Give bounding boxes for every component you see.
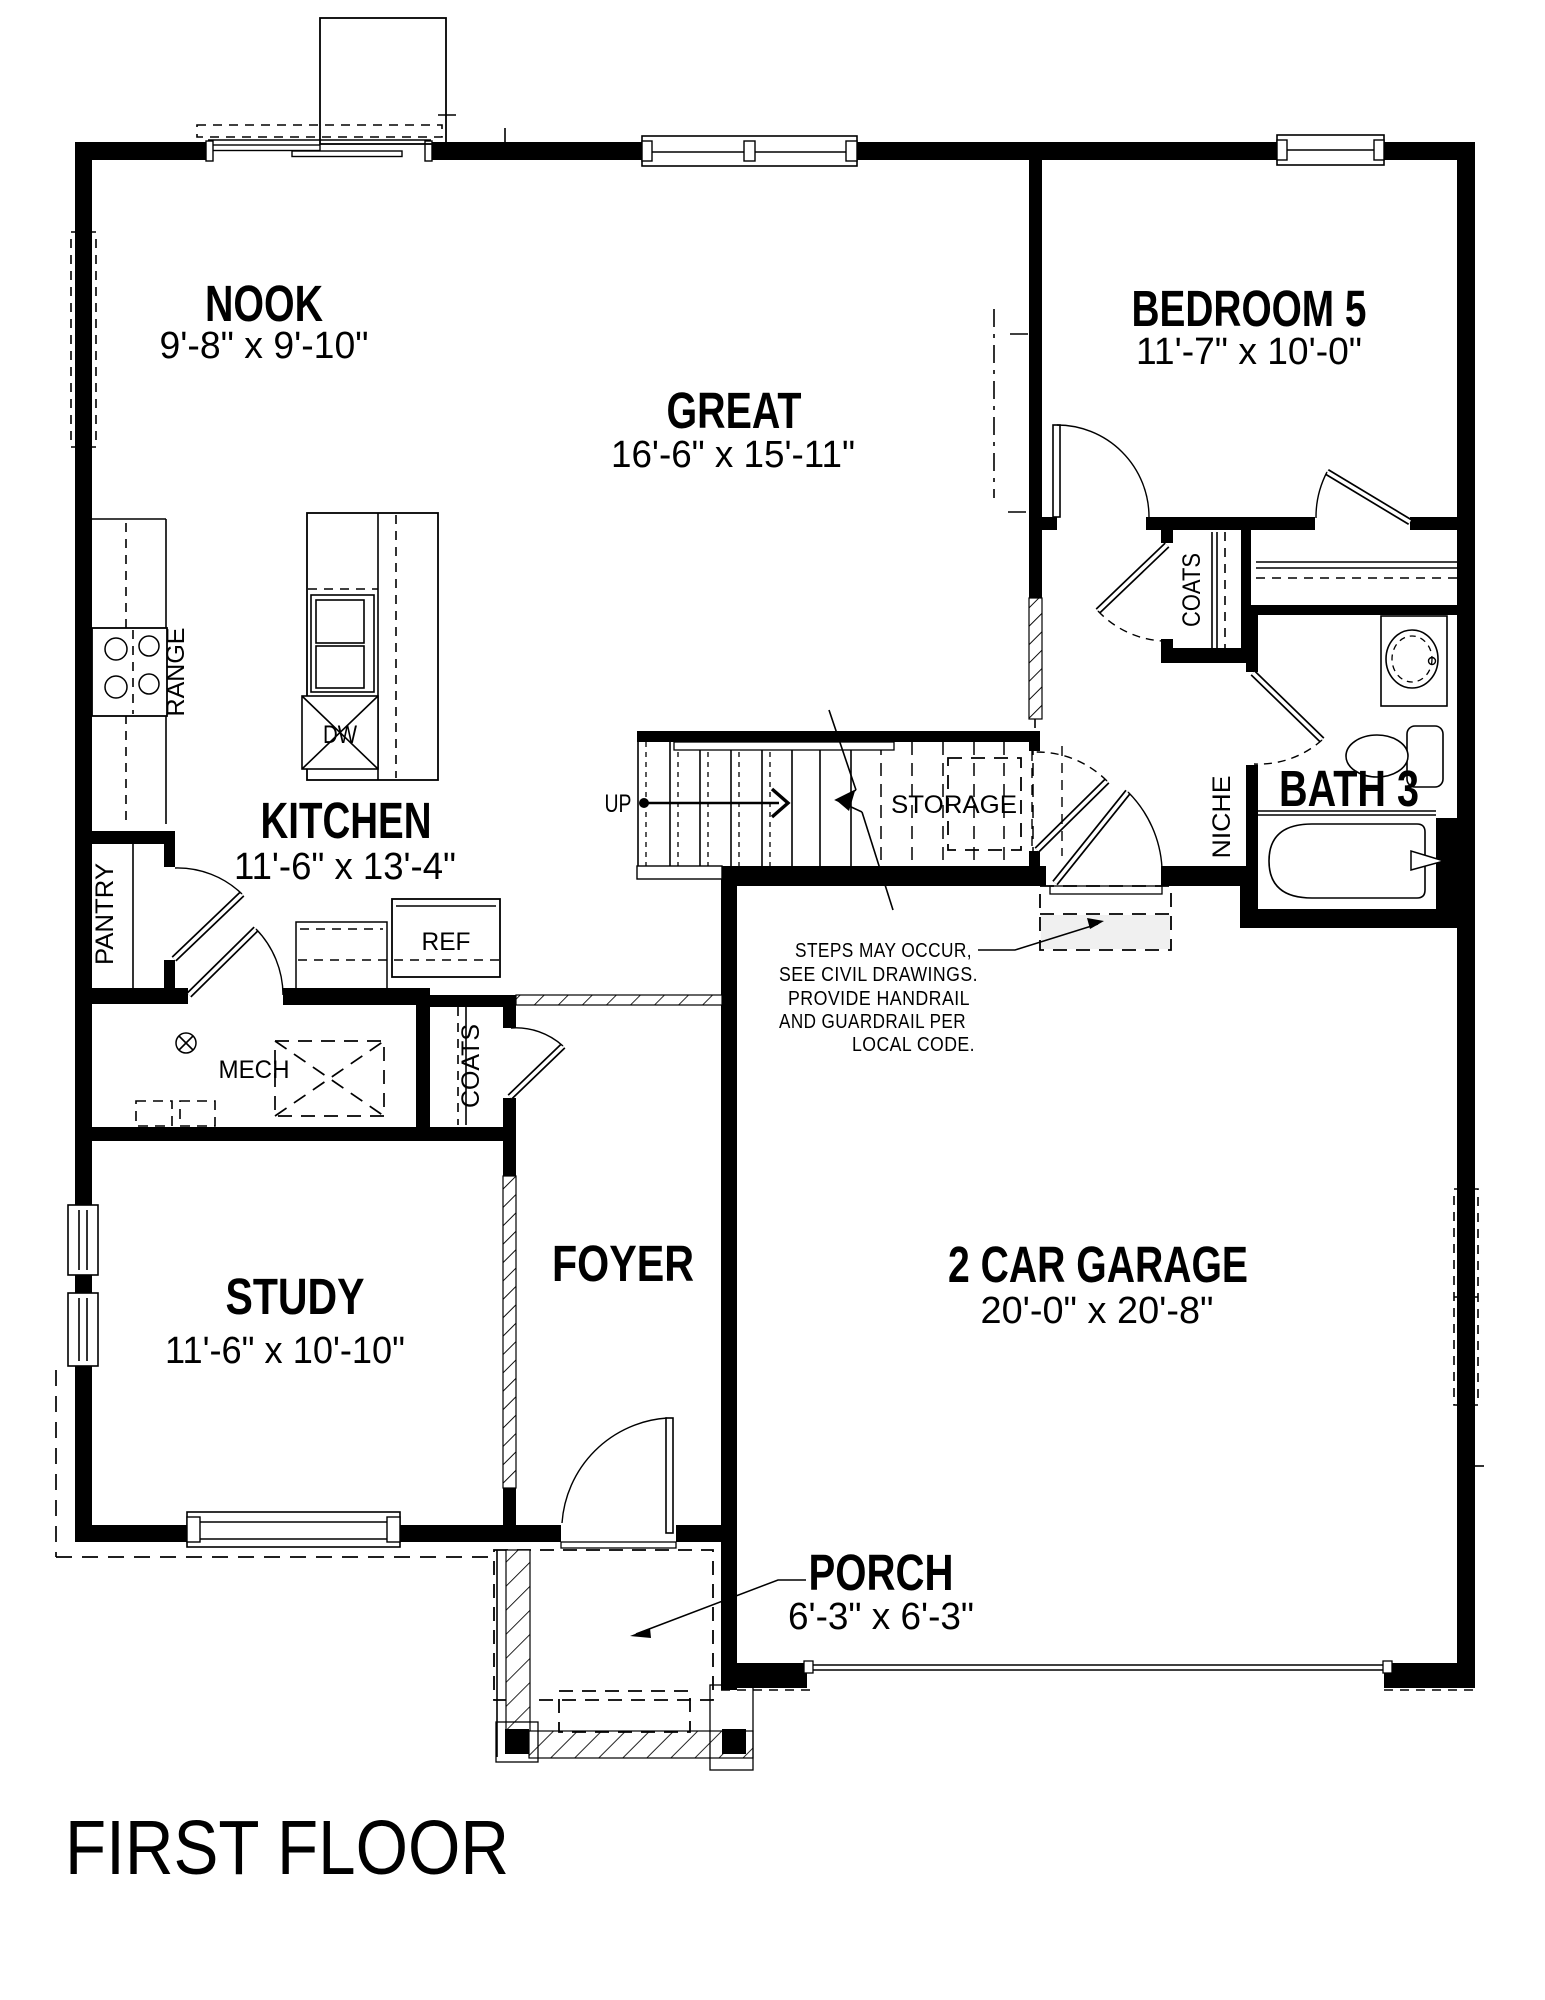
svg-text:11'-6" x 13'-4": 11'-6" x 13'-4" [234, 846, 456, 888]
svg-text:SEE CIVIL DRAWINGS.: SEE CIVIL DRAWINGS. [779, 964, 978, 986]
svg-text:STUDY: STUDY [226, 1268, 365, 1325]
svg-text:STORAGE: STORAGE [891, 791, 1017, 819]
svg-text:KITCHEN: KITCHEN [261, 792, 432, 849]
svg-text:UP: UP [605, 790, 632, 818]
svg-text:RANGE: RANGE [162, 628, 190, 717]
svg-text:11'-7" x 10'-0": 11'-7" x 10'-0" [1136, 331, 1362, 373]
svg-text:6'-3" x 6'-3": 6'-3" x 6'-3" [788, 1596, 974, 1638]
svg-text:BEDROOM 5: BEDROOM 5 [1132, 280, 1367, 337]
svg-text:FIRST FLOOR: FIRST FLOOR [65, 1805, 509, 1891]
svg-text:11'-6" x 10'-10": 11'-6" x 10'-10" [165, 1330, 405, 1372]
svg-text:NICHE: NICHE [1208, 776, 1236, 859]
svg-text:COATS: COATS [457, 1024, 485, 1108]
svg-text:16'-6" x 15'-11": 16'-6" x 15'-11" [611, 434, 855, 476]
svg-text:PANTRY: PANTRY [91, 863, 119, 965]
svg-text:AND GUARDRAIL PER: AND GUARDRAIL PER [779, 1011, 966, 1033]
svg-text:2 CAR GARAGE: 2 CAR GARAGE [948, 1236, 1248, 1293]
svg-text:BATH 3: BATH 3 [1279, 760, 1419, 817]
svg-text:LOCAL CODE.: LOCAL CODE. [852, 1034, 975, 1056]
svg-text:FOYER: FOYER [552, 1235, 694, 1292]
svg-text:COATS: COATS [1178, 553, 1206, 627]
svg-text:REF: REF [422, 928, 471, 956]
svg-text:NOOK: NOOK [205, 275, 323, 332]
svg-text:20'-0" x 20'-8": 20'-0" x 20'-8" [981, 1290, 1214, 1332]
svg-text:9'-8" x 9'-10": 9'-8" x 9'-10" [160, 325, 369, 367]
svg-text:STEPS MAY OCCUR,: STEPS MAY OCCUR, [795, 940, 972, 962]
svg-text:DW: DW [323, 721, 357, 749]
svg-text:GREAT: GREAT [667, 382, 802, 439]
svg-text:PORCH: PORCH [809, 1544, 954, 1601]
svg-text:MECH: MECH [219, 1056, 290, 1084]
svg-text:PROVIDE HANDRAIL: PROVIDE HANDRAIL [788, 988, 970, 1010]
